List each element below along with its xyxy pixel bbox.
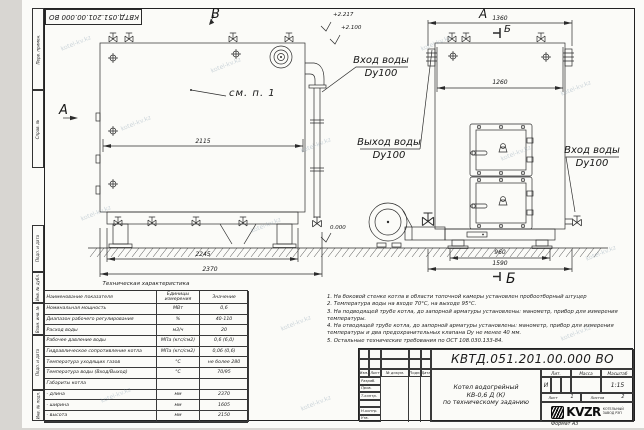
table-cell: Рабочее давление воды — [45, 336, 157, 347]
row-nkontr: Н.контр. — [359, 407, 381, 415]
rev-cell — [381, 349, 409, 359]
blower-fan — [369, 203, 445, 247]
table-cell: мм — [157, 411, 200, 422]
leader-lines — [190, 50, 619, 212]
row-razrab: Разраб. — [359, 377, 381, 385]
dimension-arrowheads — [100, 21, 572, 276]
table-cell: м3/ч — [157, 325, 200, 336]
row-utv: Утв. — [359, 415, 381, 423]
outlet-label: Выход воды — [357, 137, 421, 148]
table-cell: °С — [157, 357, 200, 368]
sheets-value: 2 — [621, 395, 624, 400]
format-label: Формат А3 — [551, 422, 578, 427]
table-cell: - длина — [45, 390, 157, 401]
sheet-cell: Лист 1 — [541, 393, 581, 402]
view-label-a-front: А — [479, 7, 487, 21]
doc-designation: КВТД.051.201.00.000 ВО — [431, 349, 634, 369]
lit-cell-3 — [561, 377, 571, 393]
inlet-right-dn: Dy100 — [576, 158, 609, 169]
rev-cell — [409, 359, 421, 369]
sheet-label: Лист — [548, 396, 557, 400]
table-cell: Температура воды (Вход/Выход) — [45, 368, 157, 379]
table-cell: Расход воды — [45, 325, 157, 336]
table-cell: Номинальная мощность — [45, 304, 157, 315]
doc-name-line2: КВ-0,6 Д (К) — [467, 392, 506, 400]
sign-col — [381, 377, 409, 422]
section-label-b-bottom: Б — [506, 271, 516, 287]
table-cell: 0,6 (6,0) — [200, 336, 249, 347]
boiler-front-view — [426, 33, 581, 249]
rev-cell — [359, 349, 369, 359]
table-cell: мм — [157, 400, 200, 411]
scale-header: Масштаб — [601, 369, 634, 377]
dim-2115: 2115 — [195, 138, 210, 145]
front-view-base — [445, 229, 555, 249]
view-label-a-side: А — [59, 103, 68, 118]
table-cell: мм — [157, 390, 200, 401]
rev-cell — [381, 359, 409, 369]
table-cell: не более 280 — [200, 357, 249, 368]
inlet-top-label: Вход воды — [353, 55, 409, 66]
drawing-page: { "watermark": "kotel-kv.kz", "frame": {… — [0, 0, 644, 430]
note-1: 1. На боковой стенке котла в области топ… — [327, 294, 629, 301]
tech-col-param: Наименование показателя — [45, 291, 157, 304]
table-cell: Гидравлическое сопротивление котла — [45, 347, 157, 358]
table-cell: - высота — [45, 411, 157, 422]
table-cell: Диапазон рабочего регулирования — [45, 315, 157, 326]
upper-furnace-door — [470, 124, 533, 176]
table-cell: 0,06 (0,6) — [200, 347, 249, 358]
row-tkontr: Т.контр. — [359, 392, 381, 400]
company-subtitle: КОТЕЛЬНЫЙ ЗАВОД РЭП — [603, 408, 624, 416]
col-doc: № докум. — [381, 369, 409, 377]
company-logo-text: KVZR — [566, 405, 601, 419]
flue-flange-circles — [270, 46, 292, 68]
dim-1260: 1260 — [492, 79, 507, 86]
col-data: Дата — [421, 369, 431, 377]
table-cell: 2150 — [200, 411, 249, 422]
tech-table-title: Техническая характеристика — [103, 281, 190, 287]
lit-cell-2 — [551, 377, 561, 393]
row-prov: Пров. — [359, 385, 381, 393]
mass-value — [571, 377, 601, 393]
outlet-dn: Dy100 — [373, 150, 406, 161]
elevation-zero: 0.000 — [330, 225, 346, 231]
col-izm: Изм. — [359, 369, 369, 377]
table-cell — [157, 379, 200, 390]
table-cell: °С — [157, 368, 200, 379]
rev-cell — [421, 349, 431, 359]
podp-col — [409, 377, 421, 422]
table-cell: 1605 — [200, 400, 249, 411]
note-2: 2. Температура воды на входе 70°С, на вы… — [327, 301, 629, 308]
table-cell: 20 — [200, 325, 249, 336]
lower-furnace-door — [470, 177, 533, 229]
dim-2245: 2245 — [195, 251, 210, 258]
ground-line — [88, 248, 608, 257]
rev-cell — [409, 349, 421, 359]
title-block: Изм. Лист № докум. Подп. Дата Разраб. Пр… — [358, 348, 633, 421]
note-3: 3. На подводящей трубе котла, до запорно… — [327, 309, 629, 323]
tech-col-value: Значение — [200, 291, 249, 304]
company-cell: KVZR КОТЕЛЬНЫЙ ЗАВОД РЭП — [541, 402, 634, 422]
sheets-cell: Листов 2 — [581, 393, 634, 402]
rev-cell — [369, 359, 381, 369]
table-cell: МПа (кгс/см2) — [157, 336, 200, 347]
technical-notes: 1. На боковой стенке котла в области топ… — [327, 294, 629, 345]
tech-table: Наименование показателя Единицы измерени… — [44, 290, 248, 423]
table-cell: 0,6 — [200, 304, 249, 315]
doc-name-line1: Котел водогрейный — [454, 384, 519, 392]
inlet-top-dn: Dy100 — [365, 68, 398, 79]
table-cell: 2370 — [200, 390, 249, 401]
table-cell: - ширина — [45, 400, 157, 411]
data-col — [421, 377, 431, 422]
dim-1360: 1360 — [492, 15, 507, 22]
boiler-side-view — [96, 33, 326, 248]
mass-header: Масса — [571, 369, 601, 377]
rev-cell — [359, 359, 369, 369]
table-cell — [200, 379, 249, 390]
table-cell: МПа (кгс/см2) — [157, 347, 200, 358]
dim-1590: 1590 — [492, 260, 507, 267]
company-logo-icon — [551, 406, 564, 419]
outlet-elbow-pipe — [305, 63, 326, 227]
elevation-2217: +2.217 — [333, 12, 353, 18]
note-5: 5. Остальные технические требования по О… — [327, 338, 629, 345]
row-empty — [359, 400, 381, 408]
rev-cell — [421, 359, 431, 369]
scale-value: 1:15 — [601, 377, 634, 393]
rev-cell — [369, 349, 381, 359]
side-view-base — [107, 212, 298, 248]
table-cell: 40-110 — [200, 315, 249, 326]
table-cell: МВт — [157, 304, 200, 315]
doc-name-line3: по техническому заданию — [443, 399, 529, 407]
sheet-value: 1 — [571, 395, 574, 400]
section-label-b-top: Б — [504, 24, 511, 35]
view-label-b-top: В — [211, 7, 220, 22]
col-podp: Подп. — [409, 369, 421, 377]
dim-960: 960 — [494, 249, 505, 256]
inlet-right-label: Вход воды — [564, 145, 620, 156]
section-view-marks — [63, 15, 500, 281]
table-cell: Габариты котла — [45, 379, 157, 390]
table-cell: % — [157, 315, 200, 326]
elevation-marks — [321, 22, 340, 242]
table-cell: 70/95 — [200, 368, 249, 379]
table-cell: Температура уходящих газов — [45, 357, 157, 368]
lit-value: И — [541, 377, 551, 393]
col-list: Лист — [369, 369, 381, 377]
see-note-callout: см. п. 1 — [229, 88, 276, 99]
dimension-lines — [100, 20, 572, 277]
tech-col-units: Единицы измерения — [157, 291, 200, 304]
company-line2: ЗАВОД РЭП — [603, 411, 622, 415]
lit-header: Лит. — [541, 369, 571, 377]
dim-2370: 2370 — [202, 266, 217, 273]
elevation-2100: +2.100 — [341, 25, 361, 31]
doc-name: Котел водогрейный КВ-0,6 Д (К) по технич… — [431, 369, 541, 422]
sheets-label: Листов — [591, 396, 605, 400]
note-4: 4. На отводящей трубе котла, до запорной… — [327, 323, 629, 337]
